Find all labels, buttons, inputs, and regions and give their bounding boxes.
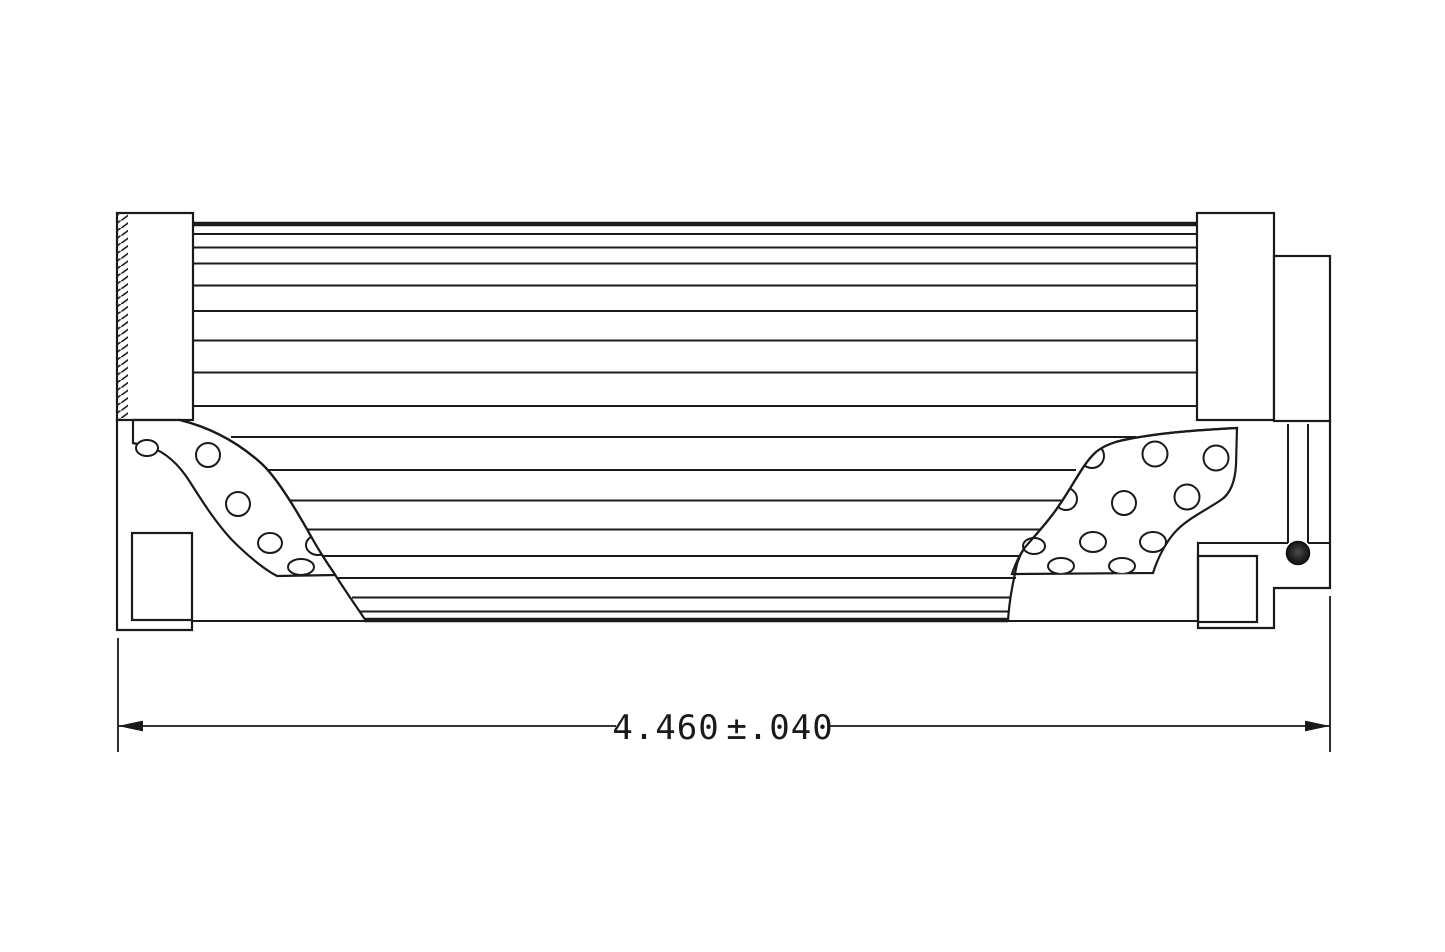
hatch-pattern <box>118 215 128 419</box>
right-end-cap <box>1197 213 1274 420</box>
o-ring <box>1287 542 1310 565</box>
perforation-hole <box>196 443 220 467</box>
right-perforated-band <box>1008 428 1237 620</box>
perforation-hole <box>226 492 250 516</box>
perforation-hole <box>1143 442 1168 467</box>
left-perforated-band <box>133 420 366 621</box>
right-foot-notch <box>1198 556 1257 622</box>
perforation-hole <box>1140 532 1166 552</box>
perforation-hole <box>1109 558 1135 574</box>
right-end-block <box>1274 256 1330 421</box>
perforation-hole <box>288 559 314 575</box>
dimension-arrow-left <box>118 721 143 732</box>
perforation-hole <box>136 440 158 456</box>
left-end-cap-body <box>117 213 193 420</box>
technical-drawing-canvas: 4.460 ±.040 <box>0 0 1445 952</box>
perforation-hole <box>1175 485 1200 510</box>
filter-element-section-drawing: 4.460 ±.040 <box>0 0 1445 952</box>
dimension-arrow-right <box>1305 721 1330 732</box>
perforation-hole <box>1080 532 1106 552</box>
perforation-hole <box>306 535 330 555</box>
dimension-value: 4.460 <box>612 708 719 748</box>
left-foot-notch <box>132 533 192 620</box>
left-end-cap <box>117 213 193 420</box>
perforation-hole <box>1204 446 1229 471</box>
perforation-hole <box>1048 558 1074 574</box>
perforation-hole <box>258 533 282 553</box>
right-end-assembly <box>1197 213 1330 628</box>
dimension-tolerance: ±.040 <box>726 708 833 748</box>
perforation-hole <box>1112 491 1136 515</box>
